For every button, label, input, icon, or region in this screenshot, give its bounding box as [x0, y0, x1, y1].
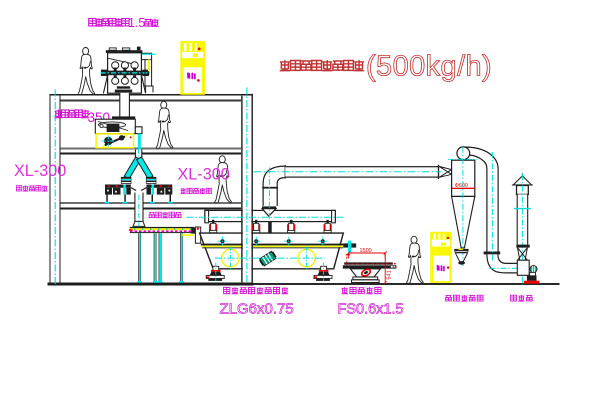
- svg-text:XL-300: XL-300: [14, 162, 66, 180]
- svg-text:1.5: 1.5: [128, 16, 145, 30]
- svg-text:541: 541: [387, 270, 393, 279]
- svg-text:XL-300: XL-300: [178, 165, 230, 183]
- svg-text:1500: 1500: [360, 248, 372, 254]
- svg-text:FS0.6x1.5: FS0.6x1.5: [338, 302, 404, 318]
- svg-text:ZLG6x0.75: ZLG6x0.75: [220, 301, 294, 318]
- svg-text:(500kg/h): (500kg/h): [366, 51, 492, 83]
